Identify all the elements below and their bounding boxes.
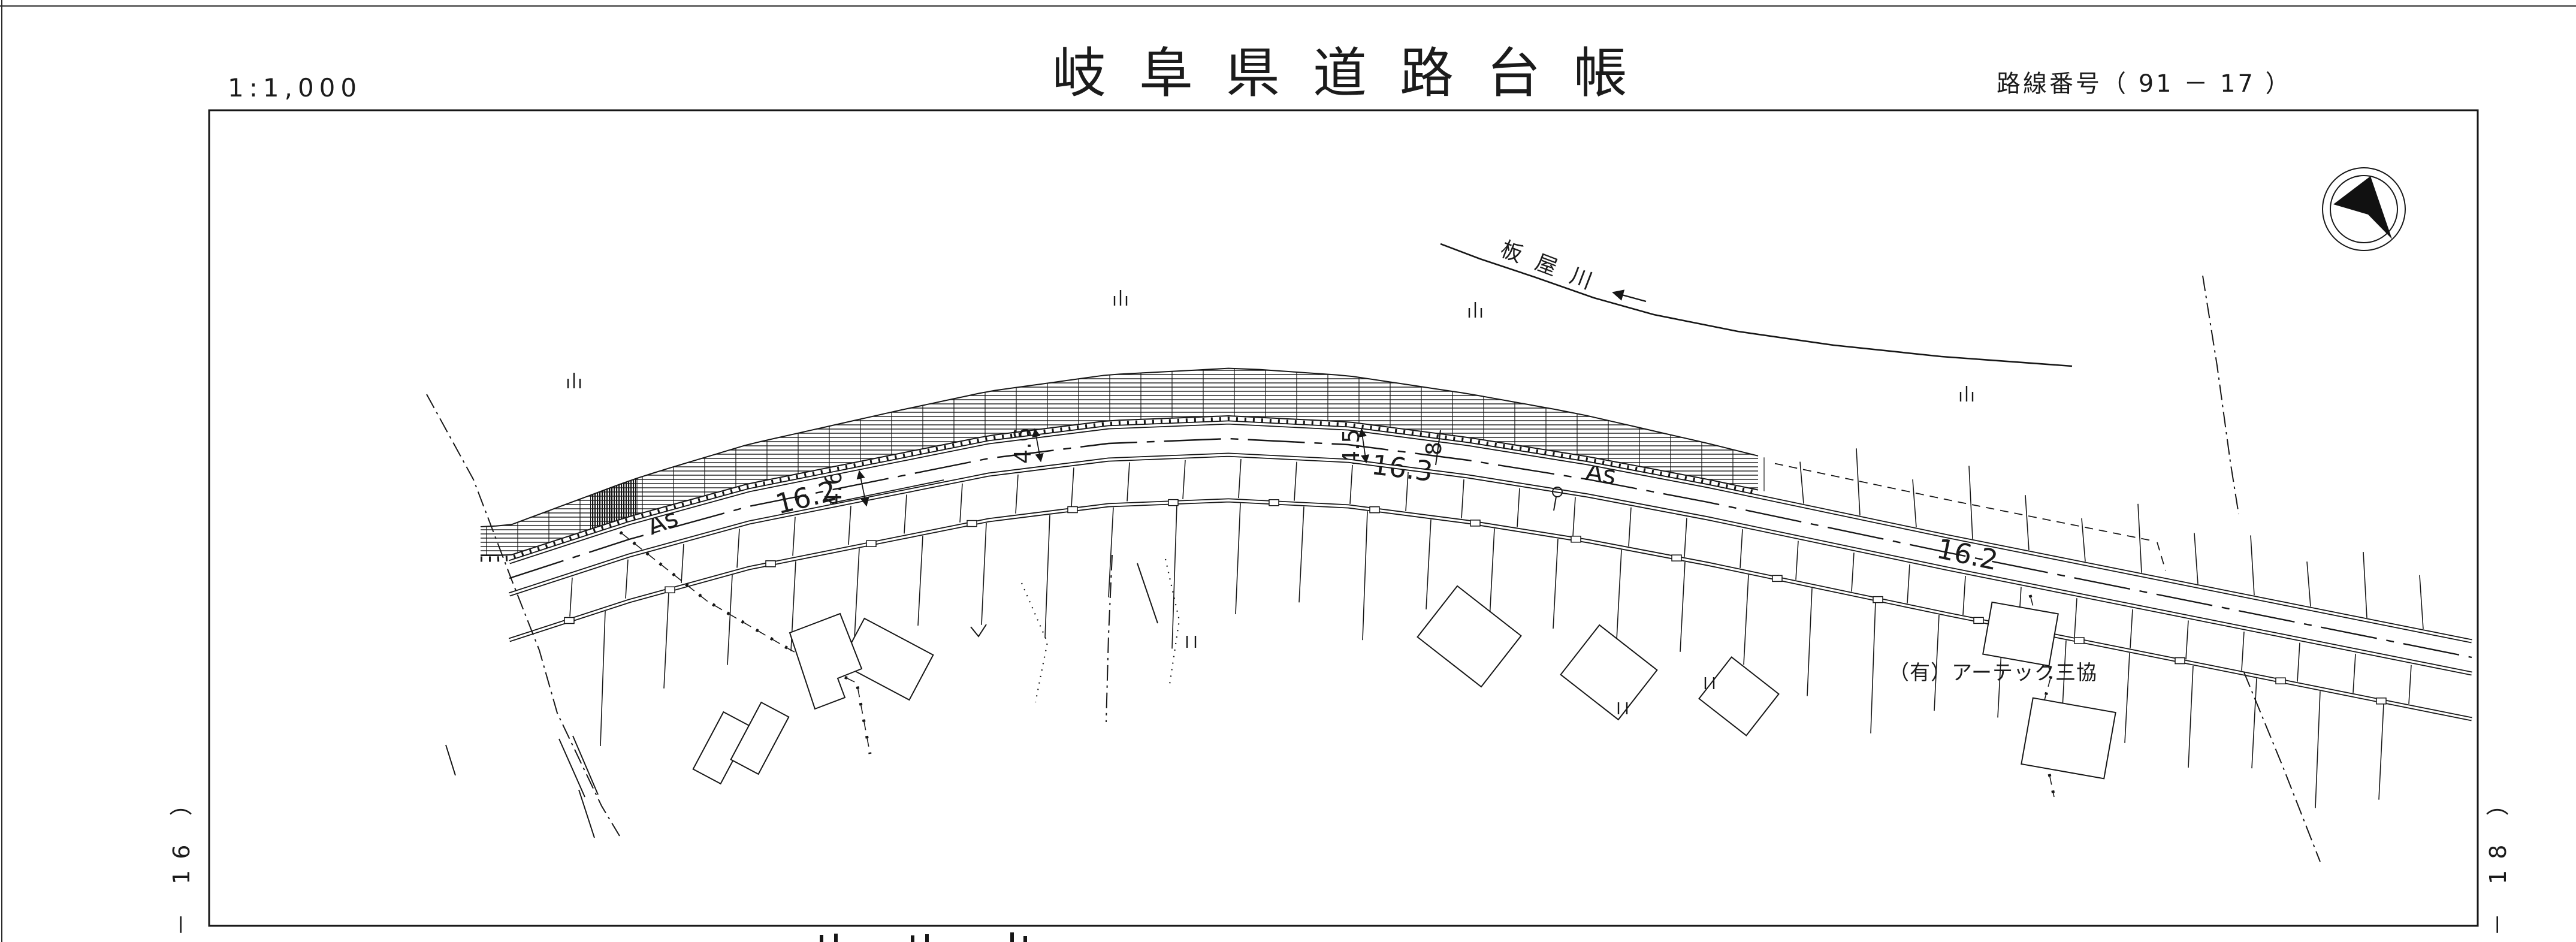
map-drawing — [0, 0, 2576, 942]
marsh-symbol-icon — [1469, 302, 1481, 318]
v-mark — [971, 624, 986, 636]
marsh-symbol-icon — [1961, 386, 1973, 401]
marsh-symbol-icon — [568, 373, 580, 388]
road-ledger-sheet: { "header": { "scale_label": "1:1,000", … — [0, 0, 2576, 942]
marsh-symbol-icon — [1115, 290, 1127, 306]
map-linework — [427, 244, 2472, 942]
paddy-symbol-icon — [1187, 636, 1195, 648]
north-compass-icon — [2323, 168, 2405, 250]
